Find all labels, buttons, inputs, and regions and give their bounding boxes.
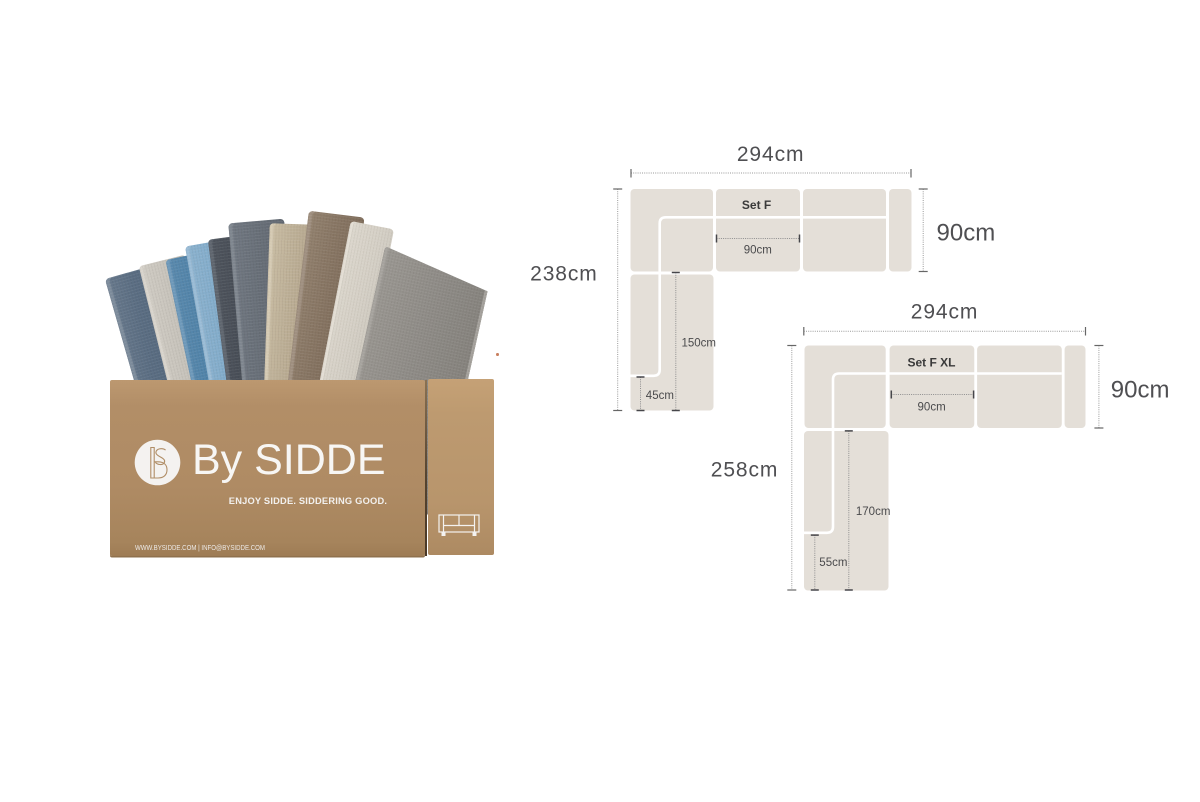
svg-text:150cm: 150cm (682, 338, 717, 350)
svg-text:90cm: 90cm (1111, 377, 1170, 404)
svg-text:294cm: 294cm (737, 143, 805, 166)
svg-text:Set F: Set F (742, 198, 771, 212)
svg-text:55cm: 55cm (819, 557, 847, 569)
svg-text:90cm: 90cm (937, 220, 996, 247)
svg-text:Set F XL: Set F XL (907, 356, 955, 370)
svg-text:258cm: 258cm (711, 459, 779, 482)
svg-text:90cm: 90cm (918, 402, 946, 414)
svg-text:45cm: 45cm (646, 390, 674, 402)
svg-text:238cm: 238cm (530, 263, 598, 286)
svg-text:90cm: 90cm (744, 244, 772, 256)
svg-text:170cm: 170cm (856, 506, 891, 518)
svg-text:294cm: 294cm (911, 301, 979, 324)
